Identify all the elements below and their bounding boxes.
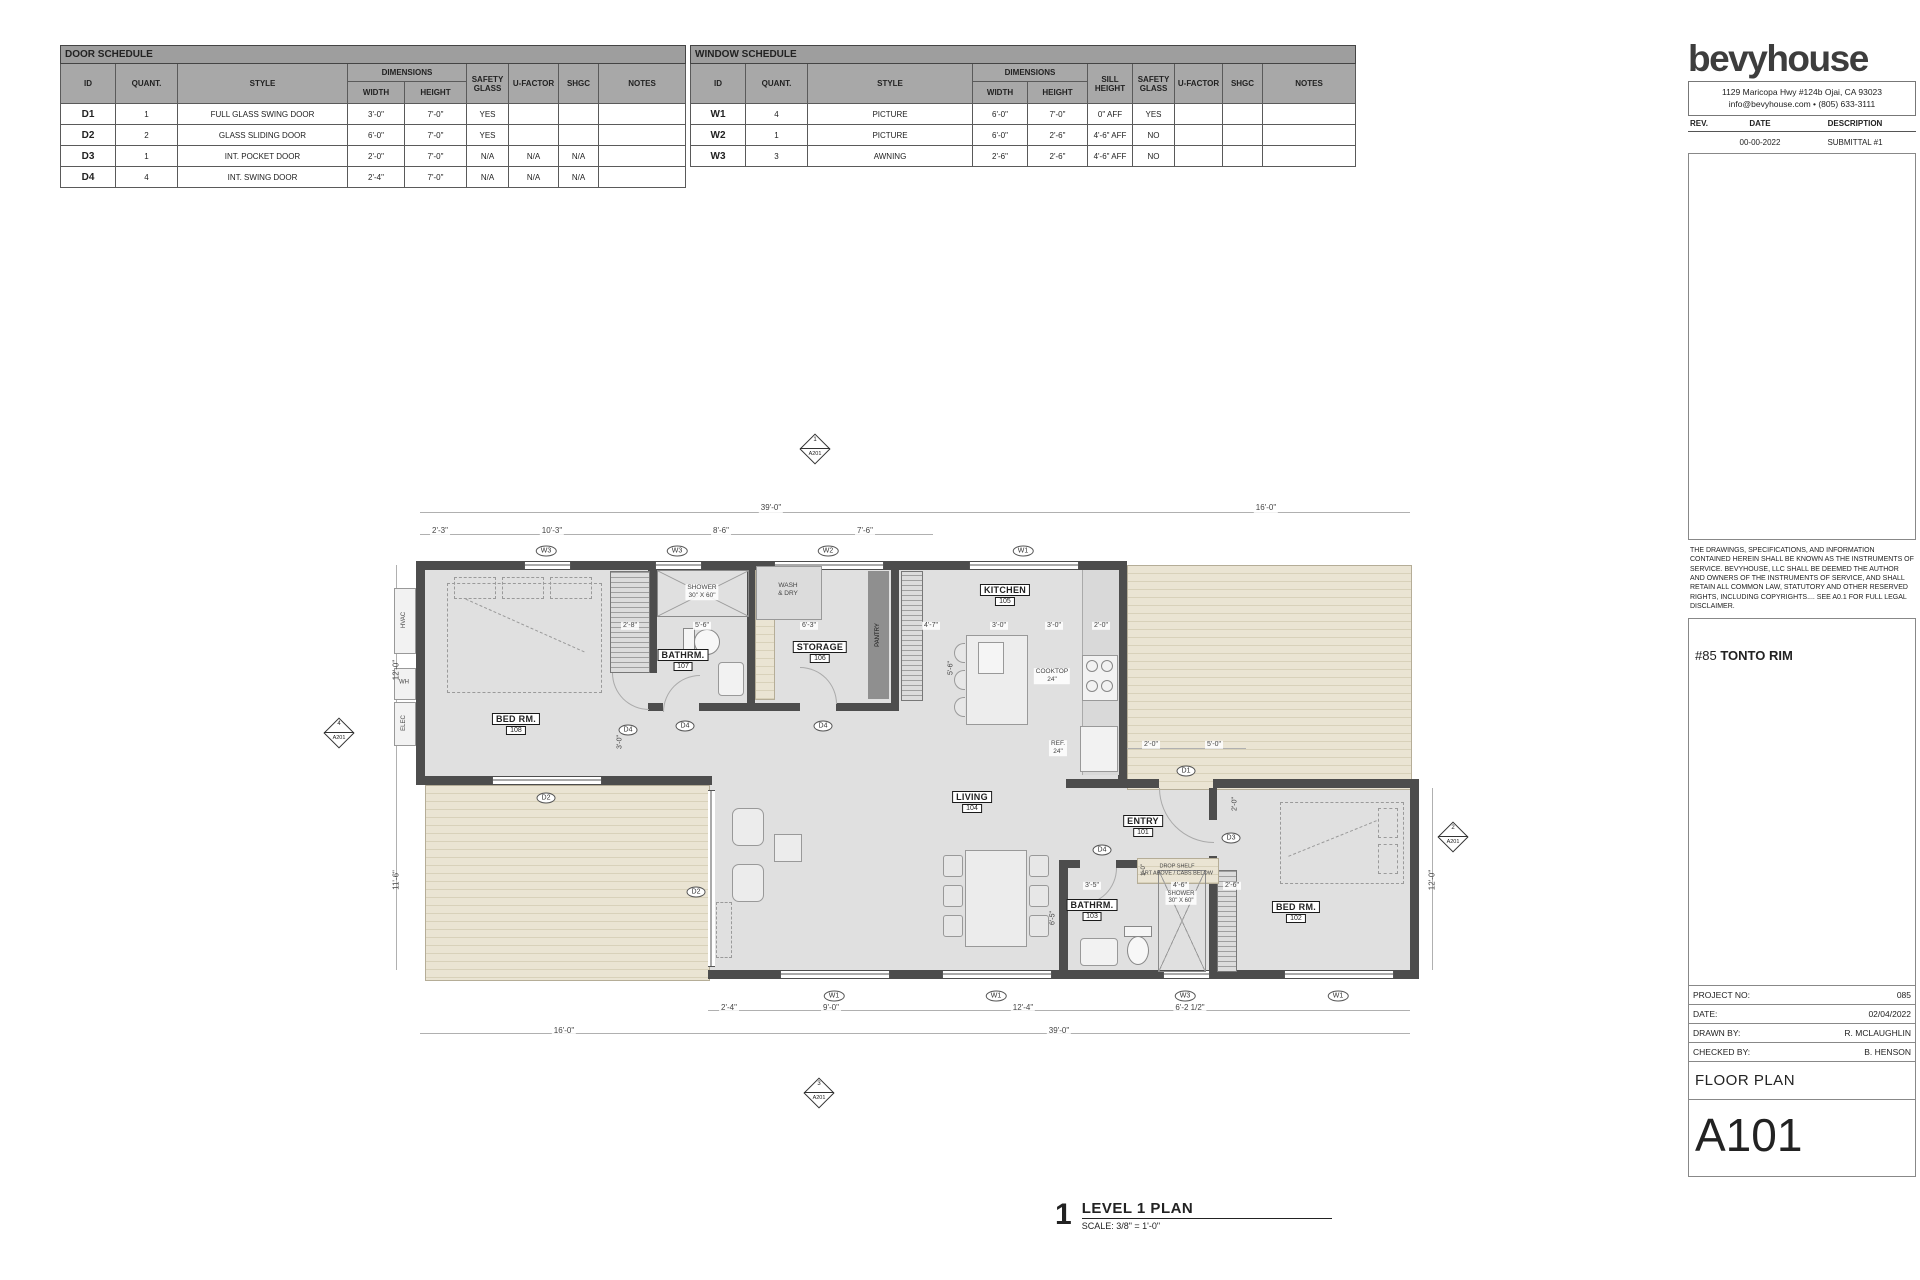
window-w3 [524, 562, 571, 569]
section-marker-right: 2 A201 [1438, 822, 1468, 852]
col-header: SILL HEIGHT [1088, 64, 1133, 104]
table-row: W21PICTURE6'-0"2'-6"4'-6" AFFNO [691, 125, 1356, 146]
door-tag-d4: D4 [814, 721, 833, 732]
door-tag-d2: D2 [537, 793, 556, 804]
window-tag-w1: W1 [1328, 991, 1349, 1002]
table-row: W14PICTURE6'-0"7'-0"0" AFFYES [691, 104, 1356, 125]
window-w1 [780, 971, 890, 978]
pillow [454, 577, 496, 599]
door-schedule-table: DOOR SCHEDULE ID QUANT. STYLE DIMENSIONS… [60, 45, 686, 188]
door-schedule-title: DOOR SCHEDULE [61, 46, 686, 64]
dim-label: 9'-0" [821, 1003, 841, 1013]
dim-label: 6'-3" [800, 622, 818, 630]
room-label-entry: ENTRY101 [1123, 815, 1163, 837]
room-label-bath2: BATHRM.103 [1067, 899, 1118, 921]
dim-label: 7'-6" [855, 526, 875, 536]
table-row: W33AWNING2'-6"2'-6"4'-6" AFFNO [691, 146, 1356, 167]
col-header: STYLE [808, 64, 973, 104]
pillow [550, 577, 592, 599]
project-no-row: PROJECT NO:085 [1688, 986, 1916, 1005]
col-header: NOTES [599, 64, 686, 104]
dim-label: 4'-7" [922, 622, 940, 630]
dim-label: 16'-0" [1254, 503, 1278, 513]
project-no: 085 [1897, 990, 1911, 1000]
dim-label: 39'-0" [759, 503, 783, 513]
cooktop-label: COOKTOP24" [1034, 668, 1070, 684]
pantry-label: PANTRY [875, 623, 881, 647]
wall [1410, 788, 1419, 979]
bathroom-sink [718, 662, 744, 696]
coffee-table [774, 834, 802, 862]
pillow [1378, 808, 1398, 838]
dining-chair [943, 885, 963, 907]
drawn-by: R. MCLAUGHLIN [1844, 1028, 1911, 1038]
wall [1118, 565, 1127, 779]
window-tag-w1: W1 [1013, 546, 1034, 557]
col-header: U-FACTOR [1175, 64, 1223, 104]
elec-label: ELEC [401, 715, 407, 731]
refrigerator [1080, 726, 1118, 772]
revision-row: 00-00-2022 SUBMITTAL #1 [1688, 132, 1916, 153]
col-header: QUANT. [116, 64, 178, 104]
window-w1 [969, 562, 1079, 569]
revision-spacer [1688, 153, 1916, 540]
window-tag-w3: W3 [667, 546, 688, 557]
col-header: U-FACTOR [509, 64, 559, 104]
col-header: WIDTH [973, 82, 1028, 104]
view-name: LEVEL 1 PLAN [1082, 1200, 1332, 1219]
closet-hatch [901, 571, 923, 701]
dining-chair [943, 915, 963, 937]
door-tag-d4: D4 [619, 725, 638, 736]
ref-label: REF.24" [1049, 740, 1067, 756]
deck-right [1127, 565, 1412, 790]
bed [447, 583, 602, 693]
room-label-kitchen: KITCHEN105 [980, 584, 1030, 606]
col-header: ID [691, 64, 746, 104]
drop-shelf-label: DROP SHELFART ABOVE / CABS BELOW [1139, 863, 1215, 876]
armchair [732, 808, 764, 846]
burner [1101, 680, 1113, 692]
checked-by-row: CHECKED BY:B. HENSON [1688, 1043, 1916, 1062]
room-label-bed1: BED RM.108 [492, 713, 540, 735]
col-header: STYLE [178, 64, 348, 104]
title-block: bevyhouse 1129 Maricopa Hwy #124b Ojai, … [1688, 40, 1916, 1177]
date-col: DATE [1724, 119, 1796, 128]
door-tag-d1: D1 [1177, 766, 1196, 777]
sheet-title: FLOOR PLAN [1688, 1062, 1916, 1100]
project-name-bold: TONTO RIM [1720, 648, 1792, 663]
burner [1101, 660, 1113, 672]
window-tag-w1: W1 [986, 991, 1007, 1002]
description-col: DESCRIPTION [1796, 119, 1914, 128]
dim-label: 12'-4" [1011, 1003, 1035, 1013]
door-tag-d4: D4 [1093, 845, 1112, 856]
project-name: #85 TONTO RIM [1695, 648, 1793, 663]
checked-by: B. HENSON [1864, 1047, 1911, 1057]
dimension-line [708, 1010, 1410, 1011]
wash-dry-label: WASH& DRY [776, 582, 800, 598]
dim-label: 12'-0" [1428, 870, 1437, 890]
col-header: SHGC [559, 64, 599, 104]
col-header: QUANT. [746, 64, 808, 104]
dim-label: 2'-4" [719, 1003, 739, 1013]
date-row: DATE:02/04/2022 [1688, 1005, 1916, 1024]
table-row: D44INT. SWING DOOR2'-4"7'-0"N/AN/AN/A [61, 167, 686, 188]
dim-label: 1'-0" [1141, 864, 1147, 876]
dimension-line [1122, 748, 1246, 749]
view-number: 1 [1055, 1200, 1072, 1230]
col-header: WIDTH [348, 82, 405, 104]
island-sink [978, 642, 1004, 674]
section-marker-bottom: 3 A201 [804, 1078, 834, 1108]
window-w3 [655, 562, 702, 569]
dim-label: 3'-5" [1083, 882, 1101, 890]
firm-address: 1129 Maricopa Hwy #124b Ojai, CA 93023 [1691, 86, 1913, 98]
pillow [1378, 844, 1398, 874]
door-tag-d4: D4 [676, 721, 695, 732]
dim-label: 12'-0" [392, 660, 401, 680]
room-label-living: LIVING104 [952, 791, 992, 813]
bathroom-sink [1080, 938, 1118, 966]
revision-date: 00-00-2022 [1724, 138, 1796, 147]
sheet-date: 02/04/2022 [1868, 1009, 1911, 1019]
col-header: ID [61, 64, 116, 104]
legal-disclaimer: THE DRAWINGS, SPECIFICATIONS, AND INFORM… [1688, 540, 1916, 618]
wall [416, 561, 425, 785]
dim-label: 39'-0" [1047, 1026, 1071, 1036]
wall [891, 561, 899, 711]
col-header: DIMENSIONS [348, 64, 467, 82]
door-tag-d2: D2 [687, 887, 706, 898]
window-schedule-title: WINDOW SCHEDULE [691, 46, 1356, 64]
room-label-bath1: BATHRM.107 [658, 649, 709, 671]
dim-label: 5'-0" [1205, 741, 1223, 749]
window-schedule-table: WINDOW SCHEDULE ID QUANT. STYLE DIMENSIO… [690, 45, 1356, 167]
col-header: NOTES [1263, 64, 1356, 104]
table-row: D22GLASS SLIDING DOOR6'-0"7'-0"YES [61, 125, 686, 146]
section-marker-left: 4 A201 [324, 718, 354, 748]
pillow [502, 577, 544, 599]
window-w1 [942, 971, 1052, 978]
bench [716, 902, 732, 958]
dining-chair [1029, 885, 1049, 907]
col-header: SAFETY GLASS [1133, 64, 1175, 104]
section-marker-top: 1 A201 [800, 434, 830, 464]
dim-label: 3'-0" [990, 622, 1008, 630]
floor-plan: HVAC WH ELEC BED RM.108 BATHRM.107 STORA… [380, 430, 1570, 1150]
dim-label: 4'-6" [1171, 882, 1189, 890]
room-label-bed2: BED RM.102 [1272, 901, 1320, 923]
revision-description: SUBMITTAL #1 [1796, 138, 1914, 147]
dining-chair [943, 855, 963, 877]
dim-label: 6'-2 1/2" [1173, 1003, 1206, 1013]
col-header: HEIGHT [405, 82, 467, 104]
dim-label: 2'-0" [1142, 741, 1160, 749]
wall [1068, 860, 1080, 868]
dining-chair [1029, 855, 1049, 877]
door-opening [800, 703, 836, 711]
window-w1 [1284, 971, 1394, 978]
shower-label: SHOWER30" X 60" [685, 584, 718, 600]
firm-address-box: 1129 Maricopa Hwy #124b Ojai, CA 93023 i… [1688, 81, 1916, 116]
door-tag-d3: D3 [1222, 833, 1241, 844]
dining-table [965, 850, 1027, 947]
armchair [732, 864, 764, 902]
col-header: DIMENSIONS [973, 64, 1088, 82]
dining-chair [1029, 915, 1049, 937]
wall [1213, 779, 1419, 788]
dim-label: 2'-6" [1223, 882, 1241, 890]
dim-label: 6'-5" [1050, 911, 1057, 925]
shower-label: SHOWER30" X 60" [1166, 891, 1197, 905]
dim-label: 5'-6" [693, 622, 711, 630]
sliding-door-d2 [492, 777, 602, 784]
view-scale: SCALE: 3/8" = 1'-0" [1082, 1221, 1332, 1231]
dim-label: 2'-0" [1092, 622, 1110, 630]
window-tag-w1: W1 [824, 991, 845, 1002]
hvac-label: HVAC [401, 612, 407, 628]
dim-label: 2'-3" [430, 526, 450, 536]
window-tag-w3: W3 [536, 546, 557, 557]
revision-header: REV. DATE DESCRIPTION [1688, 116, 1916, 132]
firm-contact: info@bevyhouse.com • (805) 633-3111 [1691, 98, 1913, 110]
deck-left [425, 785, 710, 981]
col-header: HEIGHT [1028, 82, 1088, 104]
sheet-number: A101 [1688, 1100, 1916, 1177]
view-title: 1 LEVEL 1 PLAN SCALE: 3/8" = 1'-0" [1055, 1200, 1332, 1231]
wall [1116, 860, 1137, 868]
burner [1086, 660, 1098, 672]
table-row: D11FULL GLASS SWING DOOR3'-0"7'-0"YES [61, 104, 686, 125]
dim-label: 10'-3" [540, 526, 564, 536]
window-w3 [1163, 971, 1210, 978]
dim-label: 11'-6" [392, 870, 401, 890]
burner [1086, 680, 1098, 692]
rev-col: REV. [1690, 119, 1724, 128]
window-tag-w3: W3 [1175, 991, 1196, 1002]
table-row: D31INT. POCKET DOOR2'-0"7'-0"N/AN/AN/A [61, 146, 686, 167]
dim-label: 16'-0" [552, 1026, 576, 1036]
toilet-bowl [1127, 936, 1149, 965]
bevyhouse-logo: bevyhouse [1688, 40, 1916, 77]
dim-label: 2'-0" [1232, 797, 1239, 811]
drawn-by-row: DRAWN BY:R. MCLAUGHLIN [1688, 1024, 1916, 1043]
wall [1066, 779, 1159, 788]
col-header: SHGC [1223, 64, 1263, 104]
dim-label: 2'-8" [621, 622, 639, 630]
sliding-door-d2 [708, 790, 715, 967]
col-header: SAFETY GLASS [467, 64, 509, 104]
dim-label: 3'-0" [1045, 622, 1063, 630]
wh-label: WH [397, 679, 411, 686]
room-label-storage: STORAGE106 [793, 641, 847, 663]
dim-label: 8'-6" [711, 526, 731, 536]
dim-label: 3'-0" [617, 735, 624, 749]
dim-label: 5'-6" [948, 661, 955, 675]
window-tag-w2: W2 [818, 546, 839, 557]
